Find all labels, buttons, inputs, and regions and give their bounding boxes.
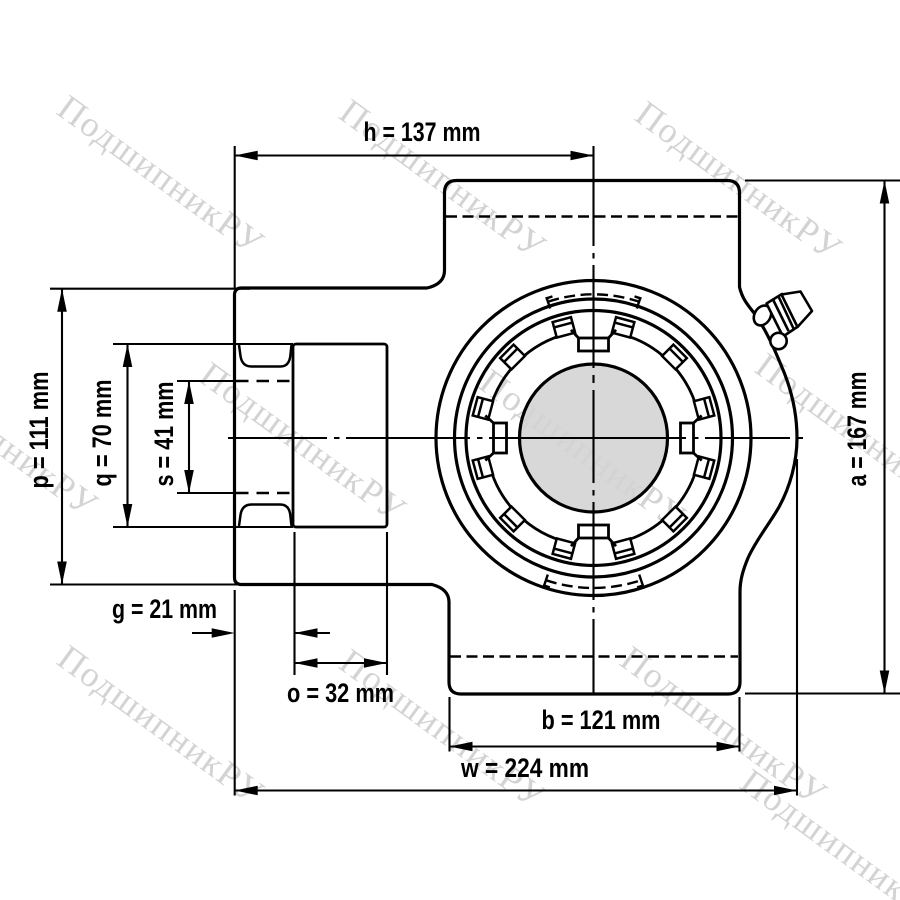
svg-text:p = 111 mm: p = 111 mm bbox=[24, 372, 54, 489]
svg-text:h = 137 mm: h = 137 mm bbox=[364, 117, 481, 147]
svg-text:g = 21 mm: g = 21 mm bbox=[112, 594, 217, 624]
svg-text:s = 41 mm: s = 41 mm bbox=[149, 382, 179, 487]
svg-text:b = 121 mm: b = 121 mm bbox=[542, 705, 661, 735]
svg-text:w = 224 mm: w = 224 mm bbox=[460, 753, 589, 783]
svg-text:q = 70 mm: q = 70 mm bbox=[87, 380, 117, 487]
svg-text:o = 32 mm: o = 32 mm bbox=[287, 678, 394, 708]
svg-text:a = 167 mm: a = 167 mm bbox=[842, 372, 872, 487]
